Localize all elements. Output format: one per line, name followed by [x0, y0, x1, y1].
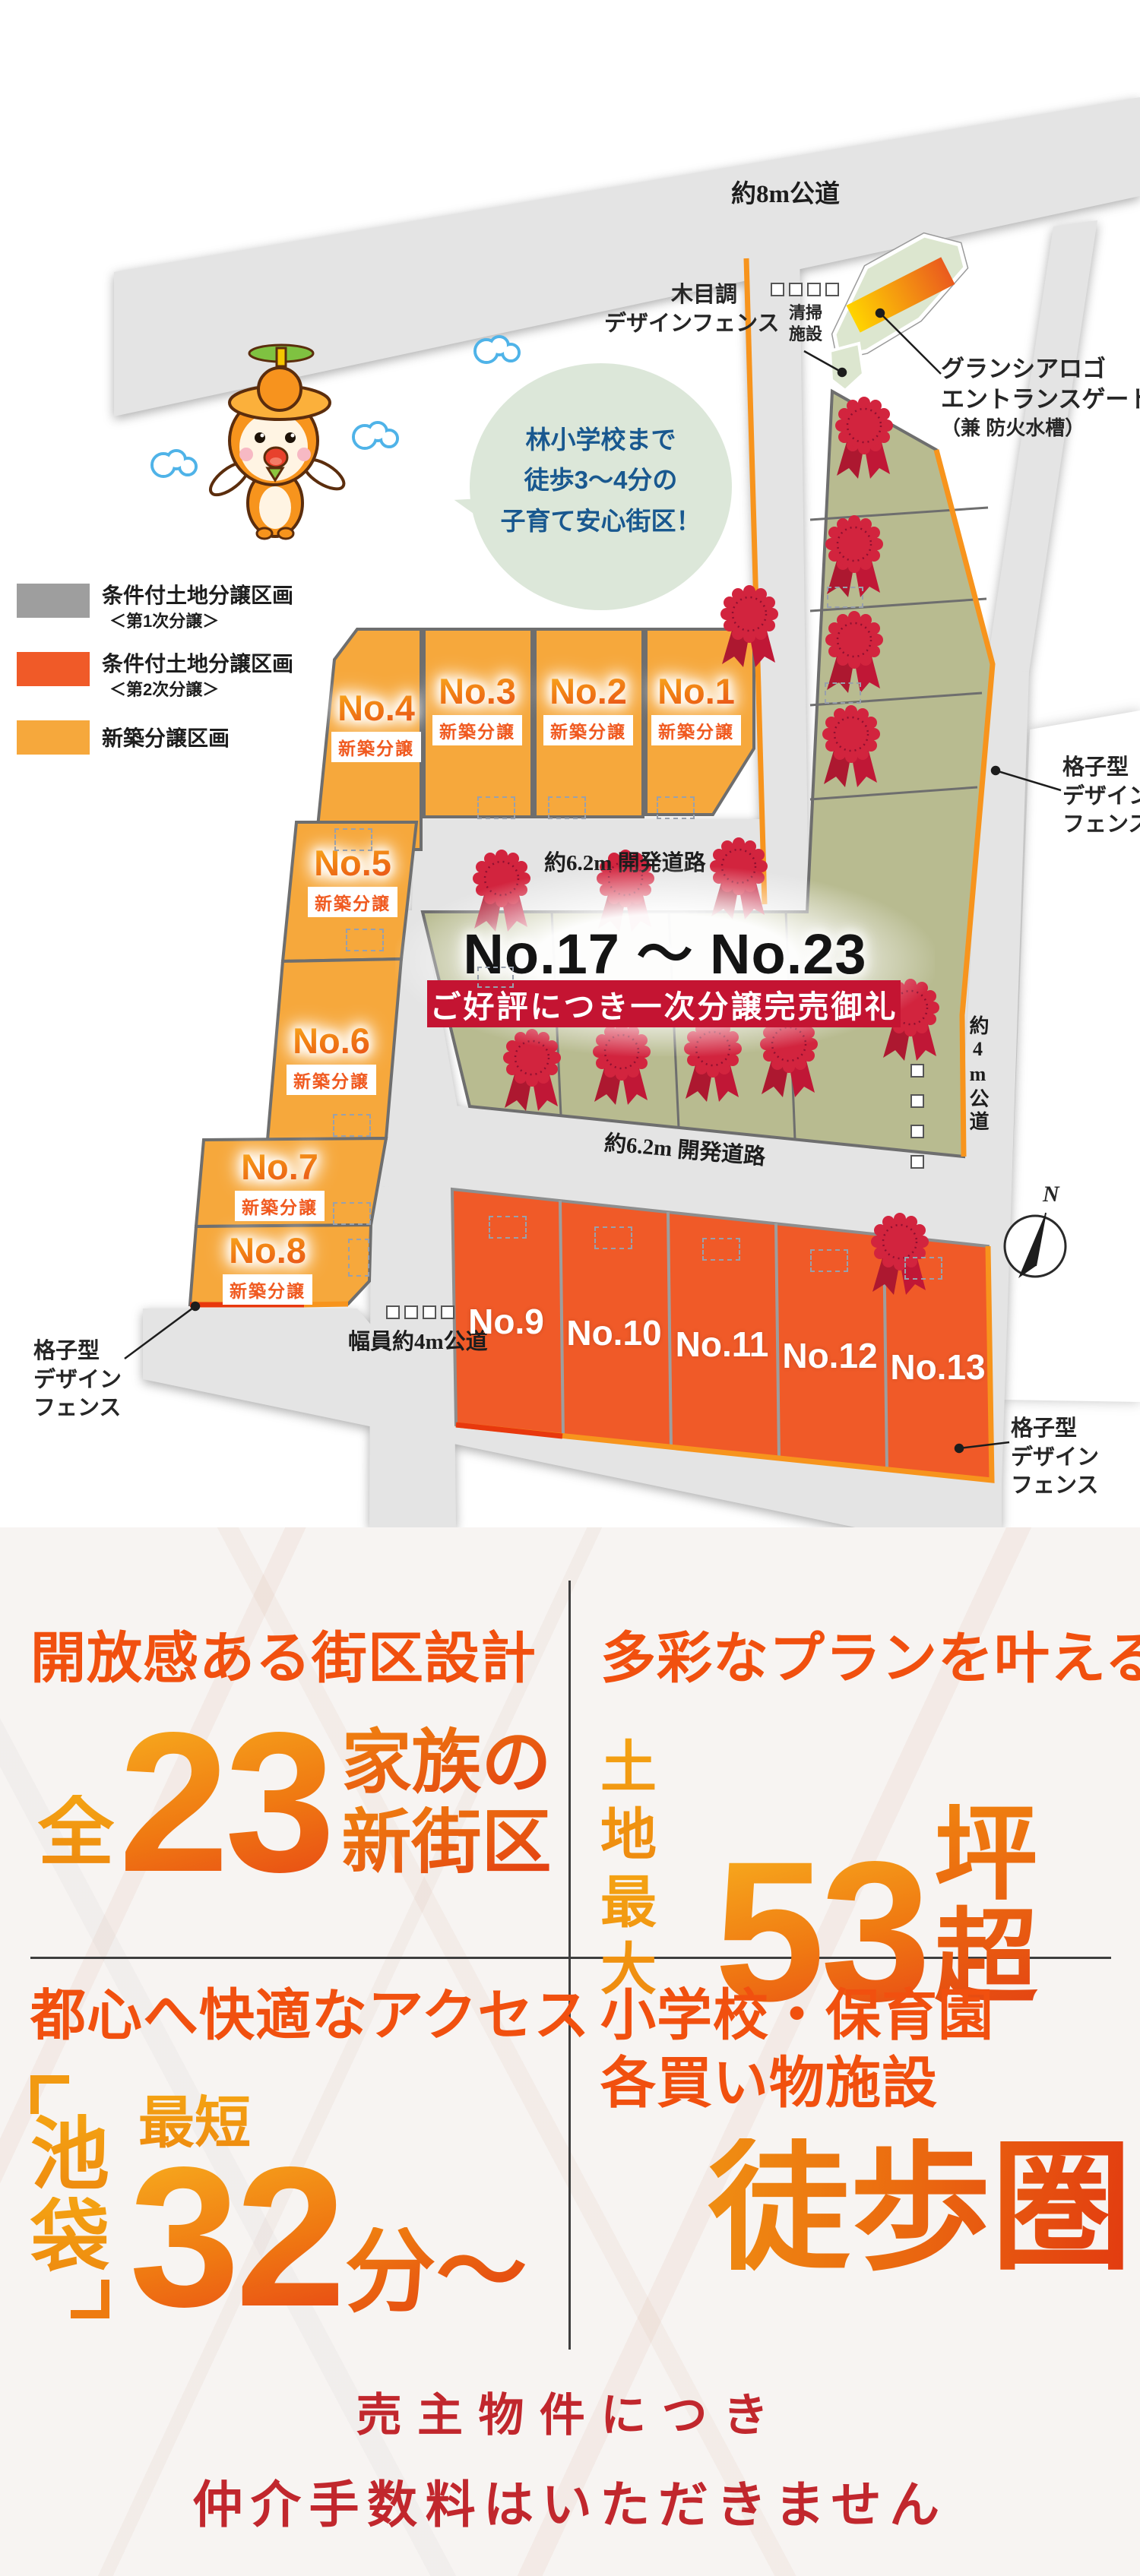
marker-square: [771, 283, 784, 296]
lot-label-no3: No.3 新築分譲: [432, 673, 522, 745]
lot-number: No.1: [651, 673, 741, 709]
parking-dash: [657, 796, 695, 819]
road-right-upper: [986, 220, 1097, 672]
parking-dash: [489, 1216, 527, 1239]
q3-station-vertical: 池 袋: [30, 2075, 109, 2318]
q1-prefix: 全: [38, 1795, 114, 1871]
parking-dash: [348, 1239, 369, 1277]
square-markers: [910, 1064, 924, 1169]
road-label-top: 約8m公道: [731, 173, 840, 210]
divider-vertical: [568, 1581, 571, 2350]
parking-dash: [333, 1114, 371, 1137]
bracket-open: [30, 2075, 69, 2114]
feature-q4: 小学校・保育園 各買い物施設 徒歩圏: [600, 1982, 1132, 2324]
cleaning-facility-shape: [830, 343, 863, 391]
parking-dash: [548, 796, 586, 819]
lot-label-no11: No.11: [676, 1324, 769, 1365]
lattice-br3: フェンス: [1011, 1472, 1099, 1501]
legend-item-phase2: 条件付土地分譲区画 ＜第2次分譲＞: [17, 652, 293, 701]
marker-square: [404, 1305, 418, 1319]
bubble-line3: 子育て安心街区！: [470, 501, 732, 541]
marker-square: [789, 283, 803, 296]
square-markers: [771, 283, 839, 296]
q3-station-char2: 袋: [30, 2197, 109, 2280]
cloud-icon: [152, 451, 196, 476]
marker-square: [807, 283, 821, 296]
parking-dash: [334, 828, 372, 851]
lattice-br2: デザイン: [1011, 1444, 1099, 1473]
gate-line1: グランシアロゴ: [941, 354, 1140, 385]
marker-square: [910, 1125, 924, 1138]
lot-tag: 新築分譲: [308, 887, 397, 917]
square-markers: [386, 1305, 454, 1319]
lattice-bl3: フェンス: [33, 1394, 122, 1423]
cloud-icon: [475, 337, 519, 362]
q3-heading: 都心へ快適なアクセス: [30, 1982, 562, 2049]
feature-q1: 開放感ある街区設計 全 23 家族の 新街区: [30, 1625, 562, 1951]
lattice-bl2: デザイン: [33, 1366, 122, 1395]
lattice-bl1: 格子型: [33, 1337, 122, 1366]
cleaning-facility-label: 清掃 施設: [789, 302, 822, 344]
cloud-icon: [353, 422, 397, 448]
wood-fence-line1: 木目調: [604, 281, 737, 310]
legend-label-1: 条件付土地分譲区画: [102, 584, 293, 608]
legend-label-2: 条件付土地分譲区画: [102, 652, 293, 676]
lot-label-no1: No.1 新築分譲: [651, 673, 741, 745]
compass-n-label: N: [1043, 1179, 1059, 1209]
legend-swatch-amber: [17, 720, 90, 755]
lattice-r2: デザイン: [1062, 783, 1140, 812]
marker-square: [386, 1305, 400, 1319]
parking-dash: [594, 1226, 632, 1249]
site-plan-map: 約8m公道 約6.2m 開発道路 約6.2m 開発道路 幅員約4m公道 約4m公…: [0, 0, 1140, 1527]
parking-dash: [346, 929, 384, 951]
lattice-fence-label-bottom-left: 格子型 デザイン フェンス: [33, 1337, 122, 1423]
legend-sub-1: ＜第1次分譲＞: [109, 608, 293, 632]
wood-fence-label: 木目調 デザインフェンス: [604, 281, 737, 338]
footer-notice: 売主物件につき 仲介手数料はいただきません: [0, 2378, 1140, 2537]
lot-label-no9: No.9: [468, 1301, 544, 1342]
gate-line3: （兼 防火水槽）: [941, 416, 1140, 441]
legend-sub-2: ＜第2次分譲＞: [109, 676, 293, 701]
legend-swatch-orange-red: [17, 652, 90, 686]
lot-number: No.7: [235, 1149, 325, 1185]
q2-prefix1: 土地: [600, 1735, 708, 1870]
bubble-line2: 徒歩3～4分の: [470, 460, 732, 500]
q1-number: 23: [119, 1721, 331, 1885]
bubble-line1: 林小学校まで: [470, 419, 732, 460]
speech-bubble-text: 林小学校まで 徒歩3～4分の 子育て安心街区！: [470, 419, 732, 541]
lot-number: No.2: [543, 673, 633, 709]
marker-square: [825, 283, 839, 296]
footer-line1: 売主物件につき: [0, 2378, 1140, 2445]
marker-square: [441, 1305, 454, 1319]
lot-tag: 新築分譲: [287, 1065, 376, 1095]
lot-number: No.8: [223, 1233, 312, 1268]
parking-dash: [904, 1257, 942, 1280]
q2-suffix: 坪超: [934, 1804, 1132, 2011]
parking-dash: [333, 1202, 371, 1225]
lot-label-no2: No.2 新築分譲: [543, 673, 633, 745]
lot-label-no8: No.8 新築分譲: [223, 1233, 312, 1305]
lot-tag: 新築分譲: [331, 732, 421, 762]
lattice-fence-label-bottom-right: 格子型 デザイン フェンス: [1011, 1415, 1099, 1501]
q4-heading2: 各買い物施設: [600, 2049, 1132, 2117]
lot-label-no10: No.10: [566, 1312, 661, 1353]
q4-heading1: 小学校・保育園: [600, 1982, 1132, 2049]
legend-item-phase1: 条件付土地分譲区画 ＜第1次分譲＞: [17, 584, 293, 632]
marker-square: [910, 1155, 924, 1169]
footer-line2: 仲介手数料はいただきません: [0, 2464, 1140, 2537]
lot-label-no7: No.7 新築分譲: [235, 1149, 325, 1221]
legend-swatch-gray: [17, 584, 90, 618]
cleaning-line2: 施設: [789, 324, 822, 345]
gate-line2: エントランスゲート: [941, 385, 1140, 415]
q1-suffix2: 新街区: [341, 1803, 551, 1883]
lot-number: No.4: [331, 690, 421, 726]
parking-dash: [477, 796, 515, 819]
legend-item-newbuild: 新築分譲区画: [17, 720, 293, 755]
parking-dash: [825, 682, 861, 704]
marker-square: [910, 1064, 924, 1078]
q1-heading: 開放感ある街区設計: [30, 1625, 562, 1692]
lattice-br1: 格子型: [1011, 1415, 1099, 1444]
parking-dash: [827, 587, 863, 608]
lot-label-no13: No.13: [890, 1347, 985, 1388]
lot-tag: 新築分譲: [235, 1191, 325, 1221]
wood-fence-line2: デザインフェンス: [604, 310, 737, 339]
lot-tag: 新築分譲: [432, 715, 522, 745]
lattice-fence-label-right: 格子型 デザイン フェンス: [1062, 754, 1140, 840]
q3-station-char1: 池: [30, 2114, 109, 2197]
lot-tag: 新築分譲: [651, 715, 741, 745]
road-label-south: 幅員約4m公道: [348, 1324, 488, 1356]
entrance-gate-label: グランシアロゴ エントランスゲート （兼 防火水槽）: [941, 354, 1140, 441]
q3-number: 32: [129, 2156, 341, 2319]
legend: 条件付土地分譲区画 ＜第1次分譲＞ 条件付土地分譲区画 ＜第2次分譲＞ 新築分譲…: [17, 584, 293, 774]
cleaning-line1: 清掃: [789, 302, 822, 324]
lot-tag: 新築分譲: [223, 1274, 312, 1305]
lattice-r3: フェンス: [1062, 811, 1140, 840]
lot-tag: 新築分譲: [543, 715, 633, 745]
q4-highlight: 徒歩圏: [600, 2138, 1132, 2280]
lot-number: No.3: [432, 673, 522, 709]
feature-q2: 多彩なプランを叶える 土地 最大 53 坪超: [600, 1625, 1132, 1951]
q2-heading: 多彩なプランを叶える: [600, 1625, 1132, 1692]
marker-square: [910, 1094, 924, 1108]
lot-label-no5: No.5 新築分譲: [308, 845, 397, 917]
lot-number: No.6: [287, 1023, 376, 1059]
road-label-east: 約4m公道: [964, 1015, 992, 1134]
lattice-r1: 格子型: [1062, 754, 1140, 783]
q1-suffix1: 家族の: [341, 1723, 551, 1803]
marker-square: [423, 1305, 436, 1319]
lot-label-no12: No.12: [782, 1335, 877, 1376]
legend-label-3: 新築分譲区画: [102, 726, 230, 751]
parking-dash: [810, 1249, 848, 1272]
lot-label-no4: No.4 新築分譲: [331, 690, 421, 762]
parking-dash: [477, 967, 514, 988]
bracket-close: [71, 2280, 109, 2318]
feature-q3: 都心へ快適なアクセス 池 袋 最短 32 分～: [30, 1982, 562, 2324]
parking-dash: [702, 1238, 740, 1261]
q3-suffix: 分～: [344, 2227, 527, 2318]
lot-label-no6: No.6 新築分譲: [287, 1023, 376, 1095]
features-panel: 開放感ある街区設計 全 23 家族の 新街区 多彩なプランを叶える 土地 最大 …: [0, 1527, 1140, 2576]
